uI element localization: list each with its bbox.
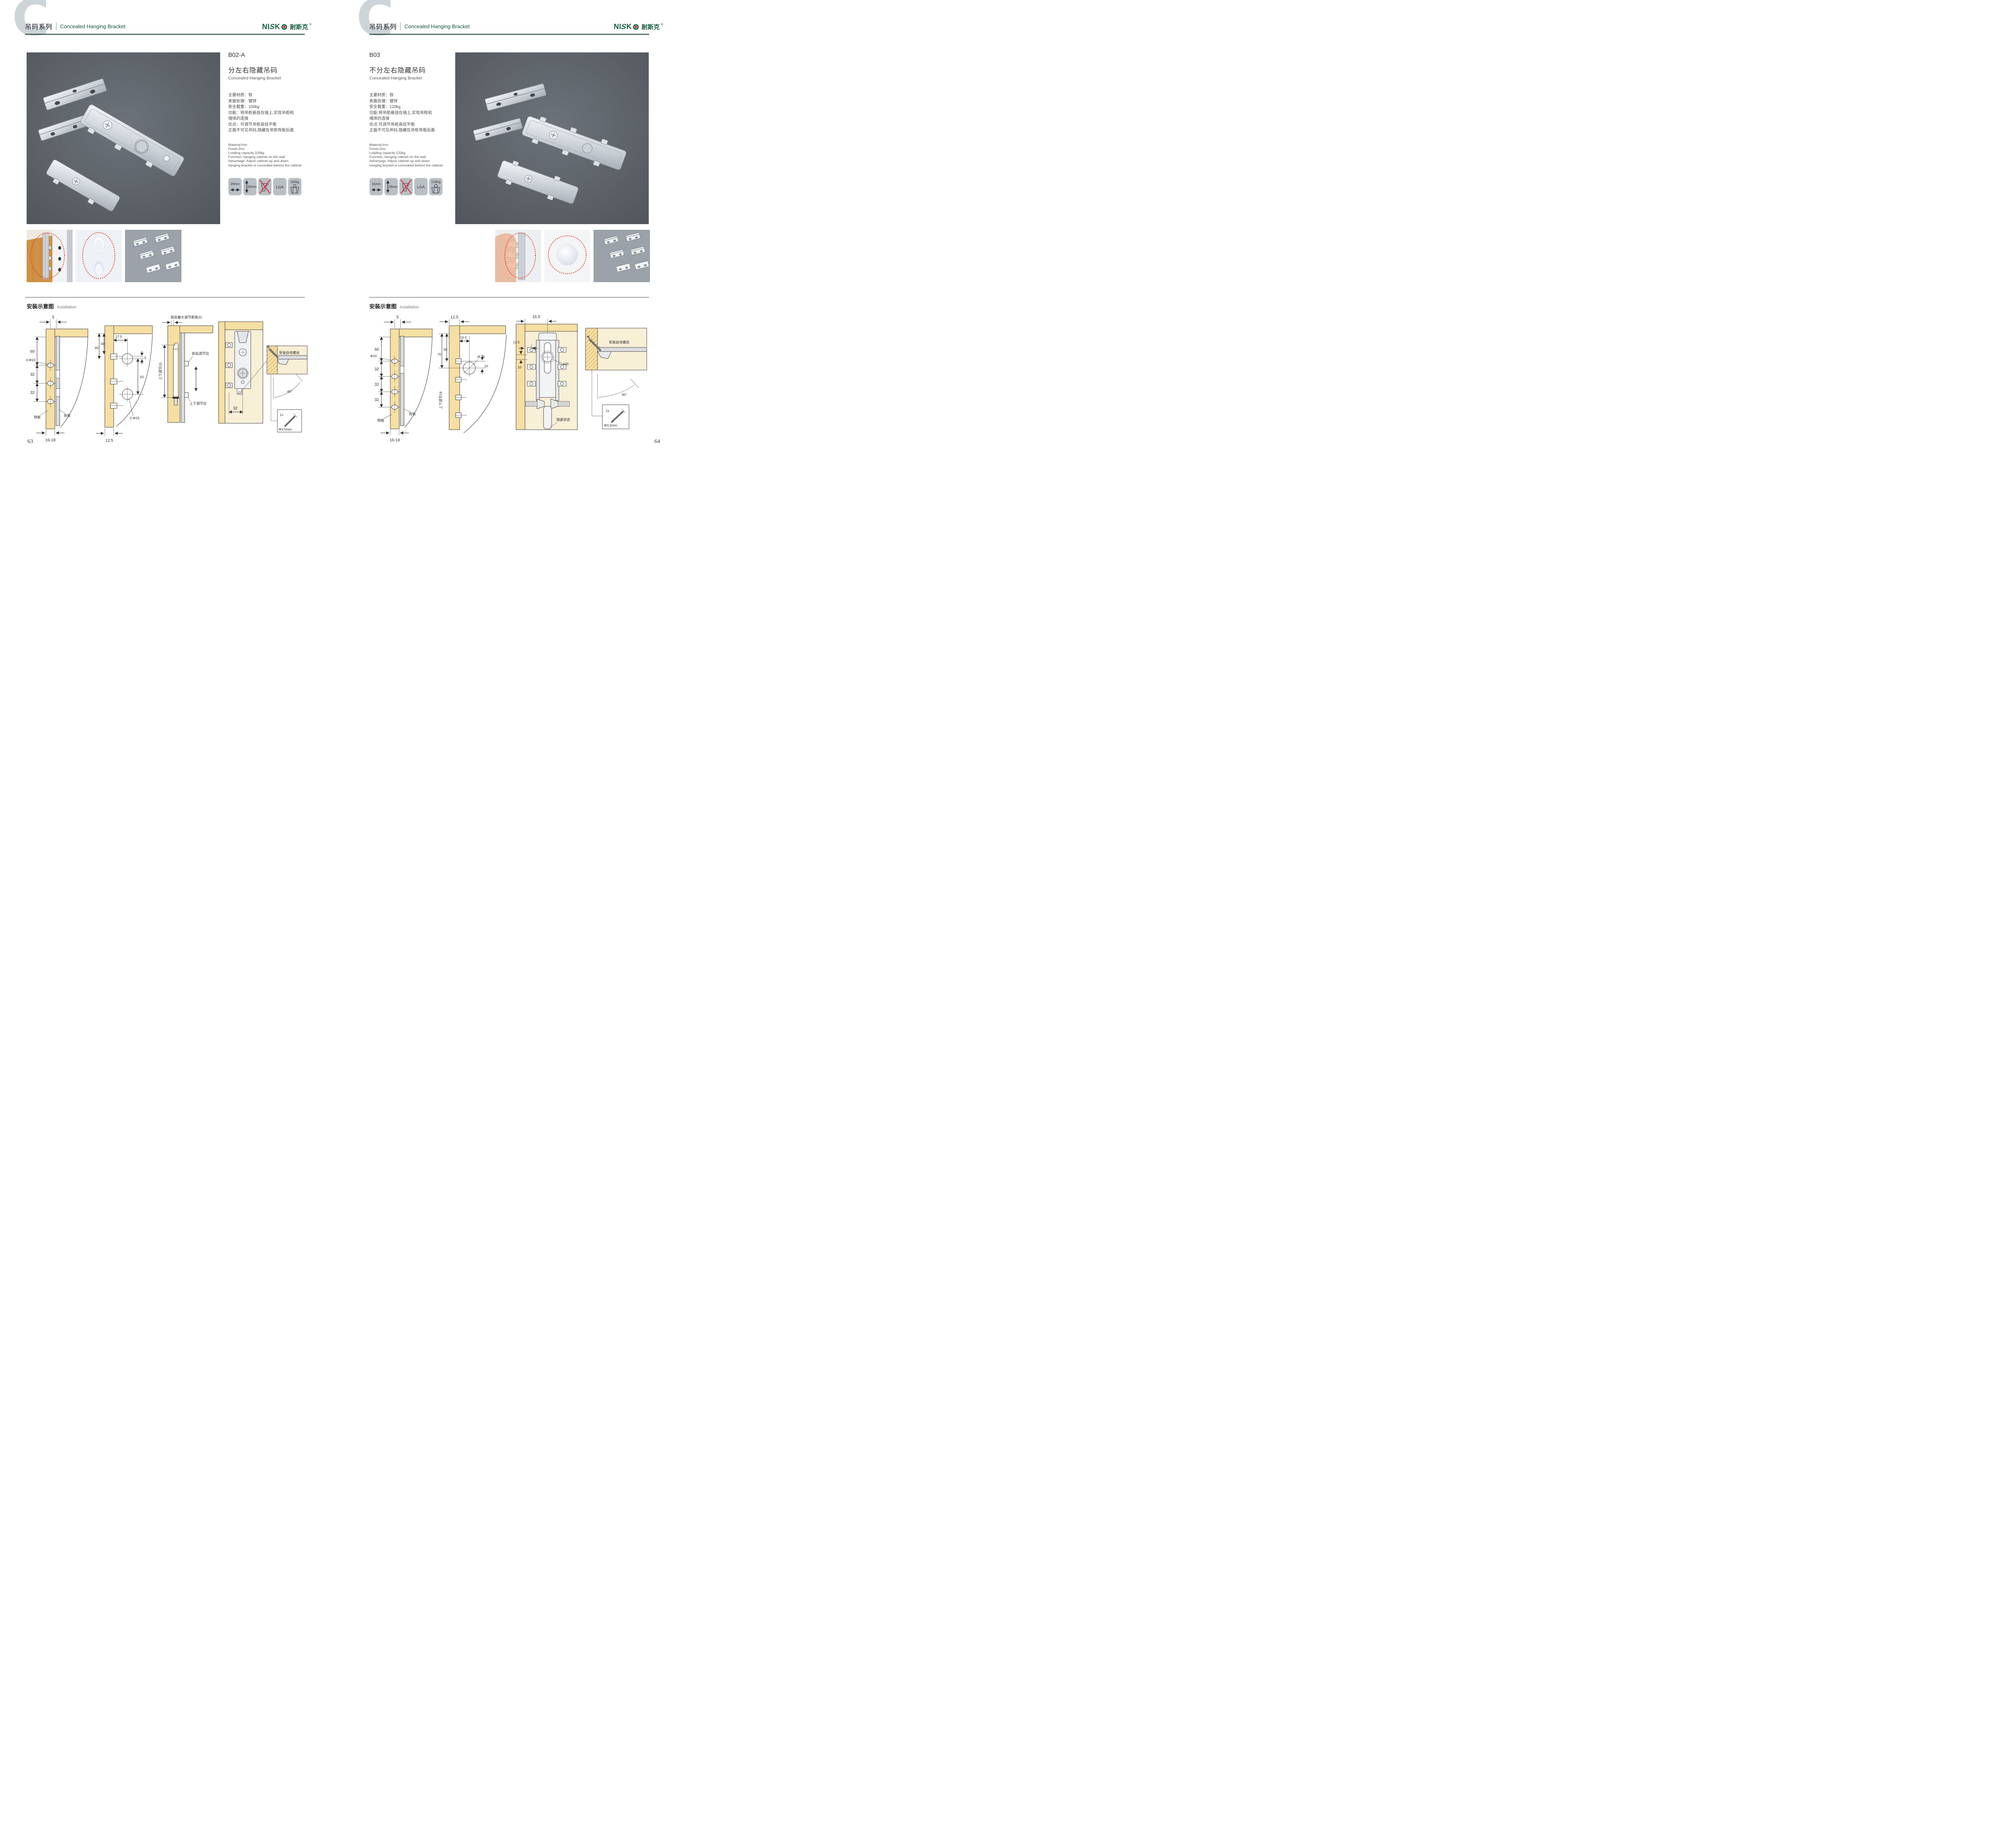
installation-rule — [369, 297, 649, 297]
screw-size-label: Φ3.5mm — [604, 423, 617, 427]
catalog-spread: C 吊码系列 Concealed Hanging Bracket NISK 耐斯… — [0, 0, 676, 462]
product-name-en: Concealed Hanging Bracket — [228, 76, 309, 81]
dim-32: 32 — [233, 406, 238, 411]
thumb-concealed-back — [76, 230, 122, 282]
installation-title-en: Installation — [400, 305, 419, 310]
back-panel-label: 背板 — [64, 414, 71, 418]
screw-qty-label: 1x — [606, 409, 610, 413]
product-model: B03 — [369, 52, 450, 58]
product-photo-b03 — [455, 52, 649, 224]
badge-load-label: 120Kg — [431, 180, 440, 184]
badge-load-label: 100kg — [290, 180, 299, 184]
dim-32: 32 — [375, 367, 379, 372]
badge-height-label: 20mm — [248, 185, 257, 189]
nisko-logo-zh: 耐斯克 — [641, 23, 660, 31]
product-specs-en: Material:Iron Finish:Zinc Loading capaci… — [369, 143, 450, 167]
dim-65: 65 — [95, 346, 99, 350]
lga-icon: LGA — [276, 185, 284, 189]
diagram-screw-detail: 安装自攻螺丝 45° 1x Φ3.5mm — [583, 314, 650, 447]
installation-rule — [25, 297, 305, 297]
badge-no-drill — [258, 178, 272, 196]
dim-60: 60 — [444, 347, 448, 352]
badge-load-capacity: 100kg — [288, 178, 302, 196]
dim-12-5: 12.5 — [105, 439, 113, 443]
self-tapping-screw-label: 安装自攻螺丝 — [279, 351, 300, 355]
nisko-logo-text: NISK — [614, 23, 632, 31]
screw-size-label: Φ3.5mm — [279, 427, 292, 431]
series-title-zh: 吊码系列 — [369, 21, 397, 31]
product-specs-en: Material:Iron Finish:Zinc Loading capaci… — [228, 143, 309, 167]
page-number: 63 — [27, 439, 33, 445]
dim-gap: 5 — [52, 315, 54, 320]
diagram-side-panel-drilling: 5 60 32 32 32 Φ10 16-18 背板 侧板 — [369, 314, 434, 447]
hole-spec-label: 3-Φ10 — [26, 358, 35, 362]
front-back-adjust-label: 前后最大调节距离20 — [171, 315, 202, 319]
hole-spec-label: ø25 — [563, 362, 569, 366]
side-panel-label: 侧板 — [377, 418, 385, 422]
installation-title-zh: 安装示意图 — [369, 302, 397, 310]
series-header: 吊码系列 Concealed Hanging Bracket — [369, 21, 470, 31]
dim-70: 70 — [437, 352, 442, 356]
badge-height-label: 18mm — [389, 185, 398, 189]
dim-10: 10 — [518, 365, 522, 369]
registered-mark-icon: ® — [309, 23, 312, 26]
dim-32: 32 — [30, 391, 35, 395]
nisko-logo: NISK 耐斯克 ® — [614, 23, 663, 31]
header-rule — [369, 34, 649, 35]
badge-width-adjust: 15mm — [369, 178, 383, 196]
badge-width-label: 15mm — [372, 182, 381, 186]
thumb-bracket-parts — [594, 230, 650, 282]
up-down-adjust-label: 上下调节18 — [439, 391, 443, 409]
badge-lga: LGA — [273, 178, 287, 196]
hole-spec-label: Φ10 — [370, 354, 377, 358]
nisko-logo-zh: 耐斯克 — [290, 23, 308, 31]
nisko-logo: NISK 耐斯克 ® — [262, 23, 312, 31]
series-divider — [56, 22, 56, 30]
side-panel-label: 侧板 — [34, 415, 41, 419]
badge-load-capacity: 120Kg — [429, 178, 443, 196]
dim-60: 60 — [375, 347, 379, 352]
header-rule — [25, 34, 305, 35]
up-down-adjust-label: 上下调节20 — [158, 362, 162, 380]
locked-state-label: 锁紧状态 — [556, 418, 571, 422]
product-specs-zh: 主要材质：铁 表面处理：镀锌 安全载重：100kg 功能：将吊柜悬挂在墙上,实现… — [228, 93, 309, 134]
installation-header: 安装示意图 Installation — [369, 302, 419, 310]
back-panel-label: 背板 — [409, 412, 416, 416]
dim-thickness: 16-18 — [389, 438, 400, 443]
badge-height-adjust: 18mm — [384, 178, 398, 196]
series-header: 吊码系列 Concealed Hanging Bracket — [25, 21, 125, 31]
dim-12-5: 12.5 — [513, 340, 520, 344]
series-title-zh: 吊码系列 — [25, 21, 52, 31]
nisko-o-icon — [633, 24, 639, 30]
angle-label: 45° — [622, 393, 627, 397]
product-model: B02-A — [228, 52, 309, 58]
series-title-en: Concealed Hanging Bracket — [60, 23, 125, 29]
diagram-bracket-front-view: 16.5 12.5 10 ø25 锁紧状态 — [513, 314, 581, 447]
thumb-bracket-parts — [125, 230, 181, 282]
dim-60: 60 — [30, 349, 35, 354]
registered-mark-icon: ® — [661, 23, 663, 26]
thumb-hand-holding-bracket — [495, 230, 541, 282]
product-info-b03: B03 不分左右隐藏吊码 Concealed Hanging Bracket 主… — [369, 52, 450, 196]
diagram-hole-positions: 12.5 16.5 70 60 Ø 25 10 上下调节18 — [437, 314, 510, 447]
badge-height-adjust: 20mm — [243, 178, 257, 196]
series-divider — [400, 22, 401, 30]
dim-32: 32 — [375, 383, 379, 387]
badge-no-drill — [399, 178, 413, 196]
feature-badges: 15mm 18mm — [369, 178, 450, 196]
dim-32: 32 — [30, 372, 35, 377]
thumb-installed-on-panel — [27, 230, 73, 282]
badge-lga: LGA — [414, 178, 428, 196]
product-name-zh: 不分左右隐藏吊码 — [369, 65, 450, 75]
front-back-position-label: 前后调节位 — [192, 352, 209, 356]
dim-thickness: 16-18 — [45, 438, 56, 443]
dim-32: 32 — [375, 398, 379, 402]
diagram-hole-positions: 65 60 17.5 5 50 2-Φ15 12.5 — [94, 314, 155, 447]
dim-16-5: 16.5 — [460, 335, 467, 339]
diagram-side-panel-drilling: 5 60 32 32 3-Φ10 16-18 侧板 背板 — [25, 314, 90, 447]
dim-offset-5: 5 — [144, 356, 146, 360]
thumb-concealed-back — [544, 230, 590, 282]
dim-17-5: 17.5 — [115, 335, 122, 339]
series-title-en: Concealed Hanging Bracket — [404, 23, 470, 29]
nisko-o-icon — [281, 24, 287, 30]
product-info-b02a: B02-A 分左右隐藏吊码 Concealed Hanging Bracket … — [228, 52, 309, 196]
dim-gap: 5 — [396, 315, 399, 320]
product-name-en: Concealed Hanging Bracket — [369, 76, 450, 81]
product-specs-zh: 主要材质：铁 表面处理：镀锌 安全载重：120kg 功能:将吊柜悬挂在墙上,实现… — [369, 93, 450, 134]
product-name-zh: 分左右隐藏吊码 — [228, 65, 309, 75]
page-number: 64 — [654, 439, 660, 445]
badge-width-adjust: 20mm — [228, 178, 242, 196]
dim-12-5: 12.5 — [450, 315, 458, 320]
product-photo-b02a — [27, 52, 220, 224]
installation-title-zh: 安装示意图 — [27, 302, 54, 310]
diagram-screw-detail: 32 安装自攻螺丝 45° 1x Φ3.5mm — [217, 314, 309, 447]
catalog-page-right: C 吊码系列 Concealed Hanging Bracket NISK 耐斯… — [338, 0, 676, 462]
diagram-adjustment: 前后最大调节距离20 上下调节20 前后调节位 上下调节位 — [158, 314, 215, 447]
dim-60: 60 — [101, 342, 105, 346]
catalog-page-left: C 吊码系列 Concealed Hanging Bracket NISK 耐斯… — [0, 0, 338, 462]
self-tapping-screw-label: 安装自攻螺丝 — [609, 340, 630, 344]
angle-label: 45° — [287, 389, 292, 393]
dim-16-5: 16.5 — [532, 315, 540, 319]
installation-title-en: Installation — [57, 305, 77, 310]
feature-badges: 20mm 20mm — [228, 178, 309, 196]
up-down-position-label: 上下调节位 — [190, 401, 207, 406]
badge-width-label: 20mm — [231, 182, 240, 186]
lga-icon: LGA — [417, 185, 425, 189]
nisko-logo-text: NISK — [262, 23, 280, 31]
hole-spec-label: 2-Φ15 — [130, 416, 140, 420]
dim-50: 50 — [140, 375, 144, 379]
screw-qty-label: 1x — [280, 413, 284, 417]
dim-offset-10: 10 — [484, 364, 488, 368]
hole-spec-label: Ø 25 — [477, 355, 485, 359]
installation-header: 安装示意图 Installation — [27, 302, 76, 310]
